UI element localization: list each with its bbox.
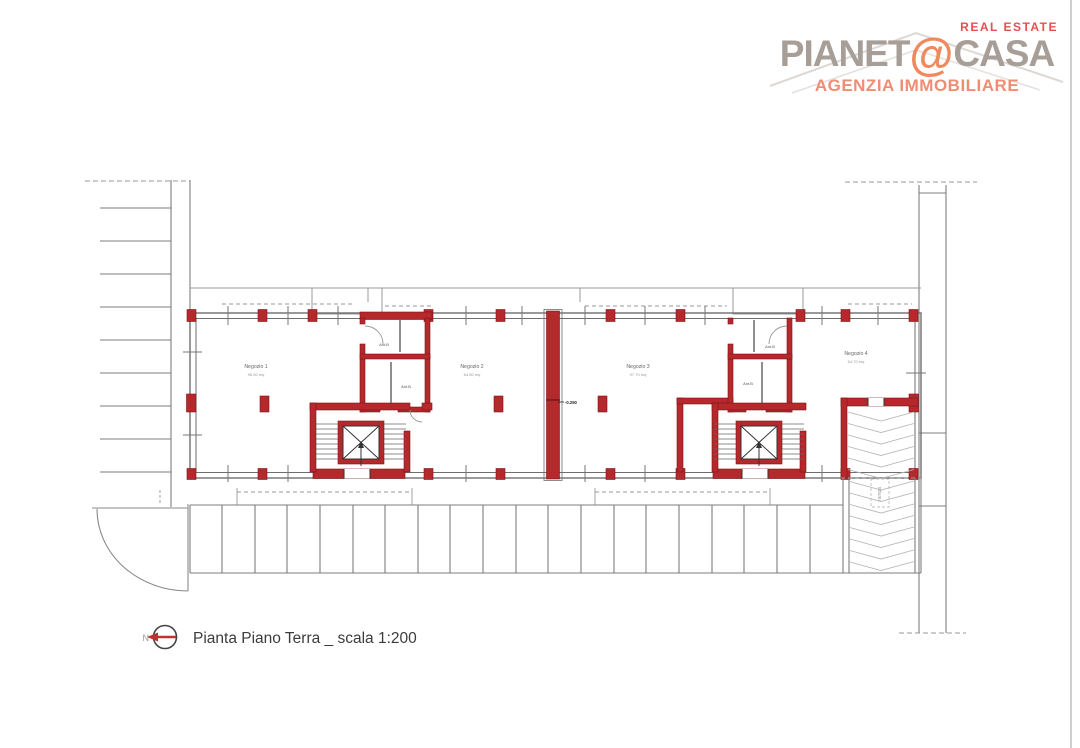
canopy-overhang: [190, 288, 921, 314]
scanned-floorplan-page: Negozio 1 96.00 mq Negozio 2 64.80 mq Ne…: [0, 0, 1080, 748]
north-letter: N: [143, 633, 150, 643]
shop4-name: Negozio 4: [844, 351, 867, 357]
antb-2-label: Ant.B: [401, 384, 411, 389]
shop4-area: 64.70 mq: [848, 359, 865, 364]
stairwell-2: [714, 424, 804, 466]
compass-icon: [147, 626, 177, 649]
lower-overhang: [160, 488, 770, 505]
floor-plan: Negozio 1 96.00 mq Negozio 2 64.80 mq Ne…: [0, 0, 1080, 748]
shop2-area: 64.80 mq: [464, 372, 481, 377]
left-parking-stalls: [85, 180, 190, 507]
antb-3-label: Ant.B: [765, 344, 775, 349]
caption-title: Pianta Piano Terra _ scala 1:200: [193, 630, 417, 647]
caption: N Pianta Piano Terra _ scala 1:200: [143, 626, 418, 649]
antb-4-label: Ant.B: [743, 381, 753, 386]
shop1-name: Negozio 1: [244, 364, 267, 370]
shop3-name: Negozio 3: [626, 364, 649, 370]
bottom-parking-row: [190, 505, 843, 573]
stairwell-1: [316, 424, 406, 466]
ramp-label: rampa: [877, 487, 883, 501]
red-structure: [187, 310, 919, 480]
level-marker: -0.250: [558, 400, 578, 405]
logo-at-icon: @: [909, 29, 953, 80]
logo-name-right: CASA: [953, 33, 1054, 74]
logo-name-left: PIANET: [780, 33, 910, 74]
antb-1-label: Ant.B: [379, 342, 389, 347]
shop2-name: Negozio 2: [460, 364, 483, 370]
logo-brand-name: PIANET@CASA: [766, 34, 1068, 75]
agency-logo: REAL ESTATE PIANET@CASA AGENZIA IMMOBILI…: [766, 20, 1068, 112]
shop3-area: 97.70 mq: [630, 372, 647, 377]
shop1-area: 96.00 mq: [248, 372, 265, 377]
level-marker-text: -0.250: [565, 400, 578, 405]
gate-arc: [92, 504, 188, 591]
logo-subtitle-text: AGENZIA IMMOBILIARE: [766, 76, 1068, 96]
